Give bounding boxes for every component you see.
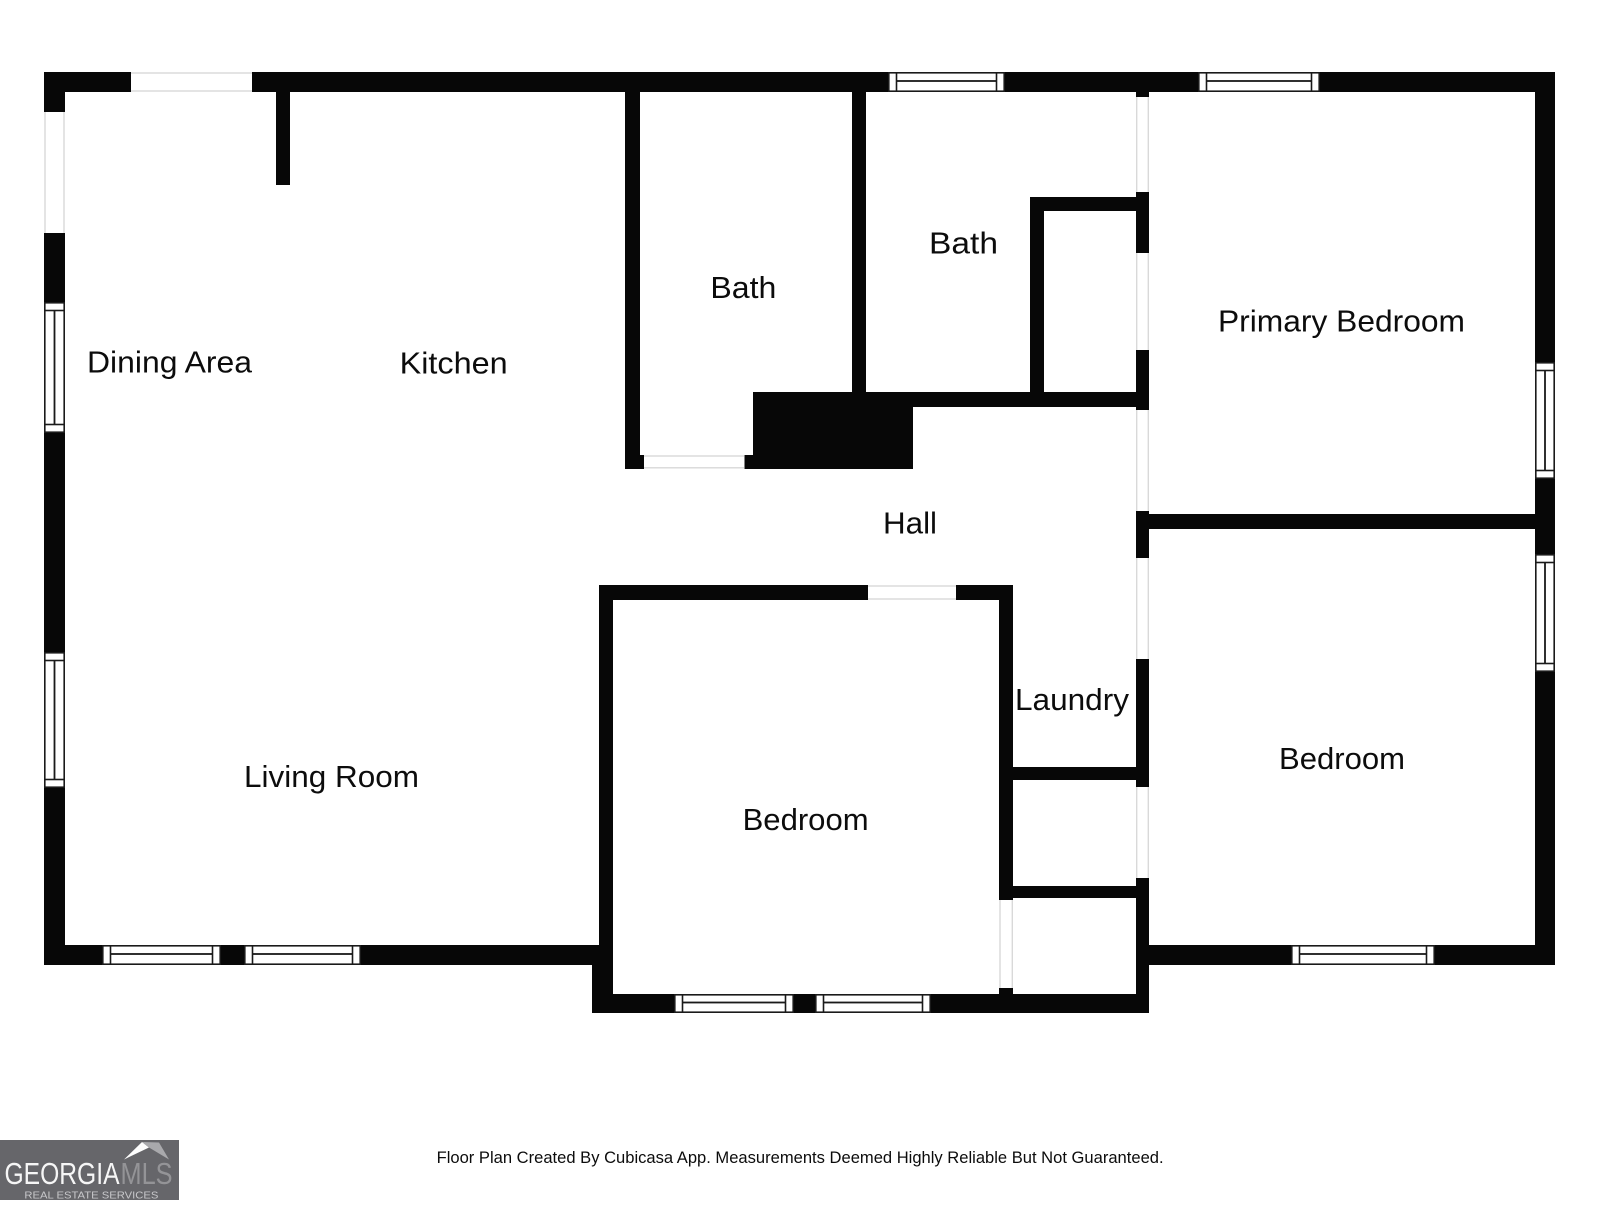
svg-text:Living Room: Living Room [244, 760, 419, 794]
svg-text:Kitchen: Kitchen [400, 347, 508, 381]
svg-text:REAL ESTATE SERVICES: REAL ESTATE SERVICES [24, 1190, 158, 1200]
svg-text:MLS: MLS [121, 1157, 173, 1191]
svg-text:Primary Bedroom: Primary Bedroom [1218, 305, 1465, 339]
svg-text:Hall: Hall [883, 507, 937, 541]
svg-text:Dining Area: Dining Area [87, 346, 252, 380]
svg-text:Bedroom: Bedroom [743, 803, 869, 837]
svg-text:Floor Plan Created By Cubicasa: Floor Plan Created By Cubicasa App. Meas… [437, 1149, 1164, 1167]
svg-text:Bedroom: Bedroom [1279, 742, 1405, 776]
svg-text:GEORGIA: GEORGIA [5, 1157, 121, 1191]
svg-text:Bath: Bath [929, 227, 998, 261]
svg-text:Laundry: Laundry [1015, 683, 1130, 717]
svg-text:Bath: Bath [710, 271, 776, 305]
